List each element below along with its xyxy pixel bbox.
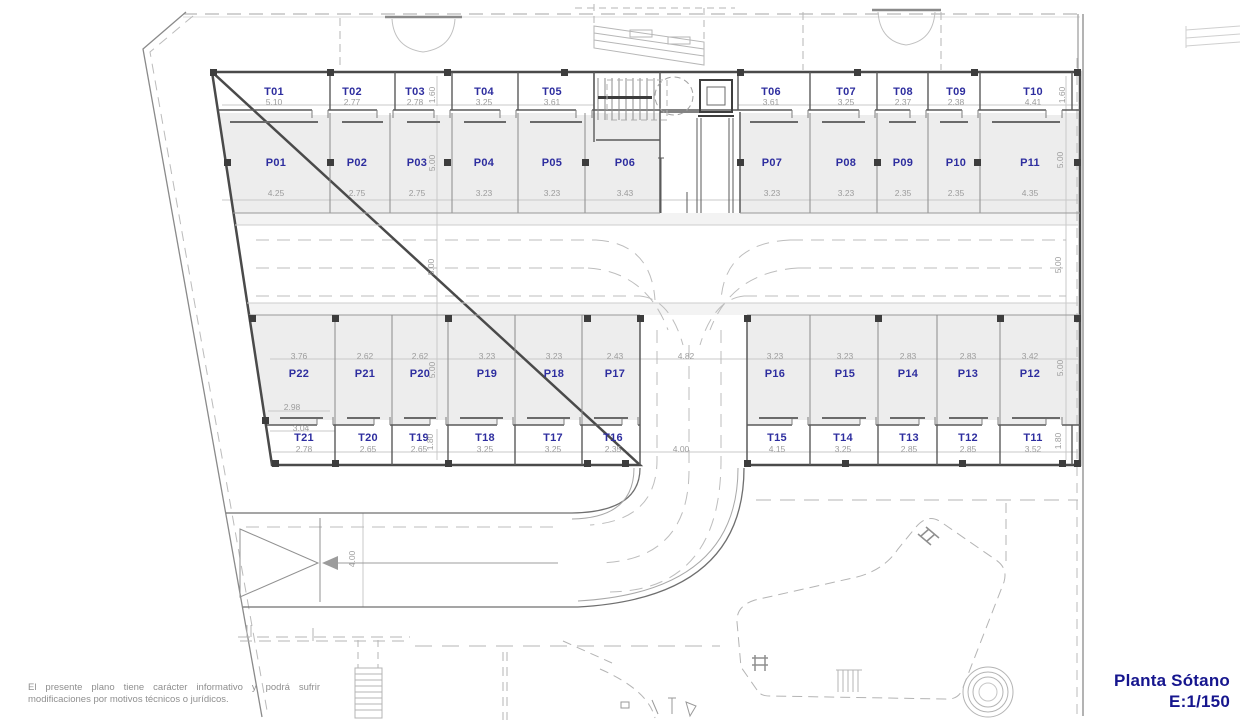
- plan-scale: E:1/150: [1114, 691, 1230, 712]
- stair-below-icon: [355, 668, 382, 718]
- pool-ladder-icon: [752, 527, 939, 671]
- storage-partitions-bottom: [335, 425, 1072, 465]
- ramp-arrow: [240, 518, 558, 602]
- plan-drawing: [0, 0, 1240, 720]
- core-corridor-walls: [658, 118, 733, 213]
- above-ground-outline-bottom: [238, 500, 1078, 720]
- neighbor-lines: [1186, 26, 1240, 48]
- floor-plan-sheet: T015.10T022.77T032.78T043.25T053.61T063.…: [0, 0, 1240, 720]
- pool-outline: [737, 518, 1005, 699]
- door-swing-icon: [392, 19, 455, 52]
- disclaimer-note: El presente plano tiene carácter informa…: [28, 682, 320, 706]
- stall-fills: [218, 113, 1080, 425]
- road-curbs: [226, 468, 744, 607]
- plan-title-block: Planta Sótano E:1/150: [1114, 670, 1230, 712]
- disclaimer-line1: El presente plano tiene carácter informa…: [28, 682, 320, 693]
- plan-title: Planta Sótano: [1114, 670, 1230, 691]
- exterior-stair-outline: [575, 4, 735, 65]
- spa-icon: [963, 667, 1013, 717]
- disclaimer-line2: modificaciones por motivos técnicos o ju…: [28, 694, 229, 705]
- stair-cut-line: [598, 96, 652, 99]
- elevator-shaft: [700, 80, 732, 112]
- pool-steps-icon: [836, 670, 862, 692]
- elevator-car: [707, 87, 725, 105]
- road-curb-inner: [572, 468, 738, 601]
